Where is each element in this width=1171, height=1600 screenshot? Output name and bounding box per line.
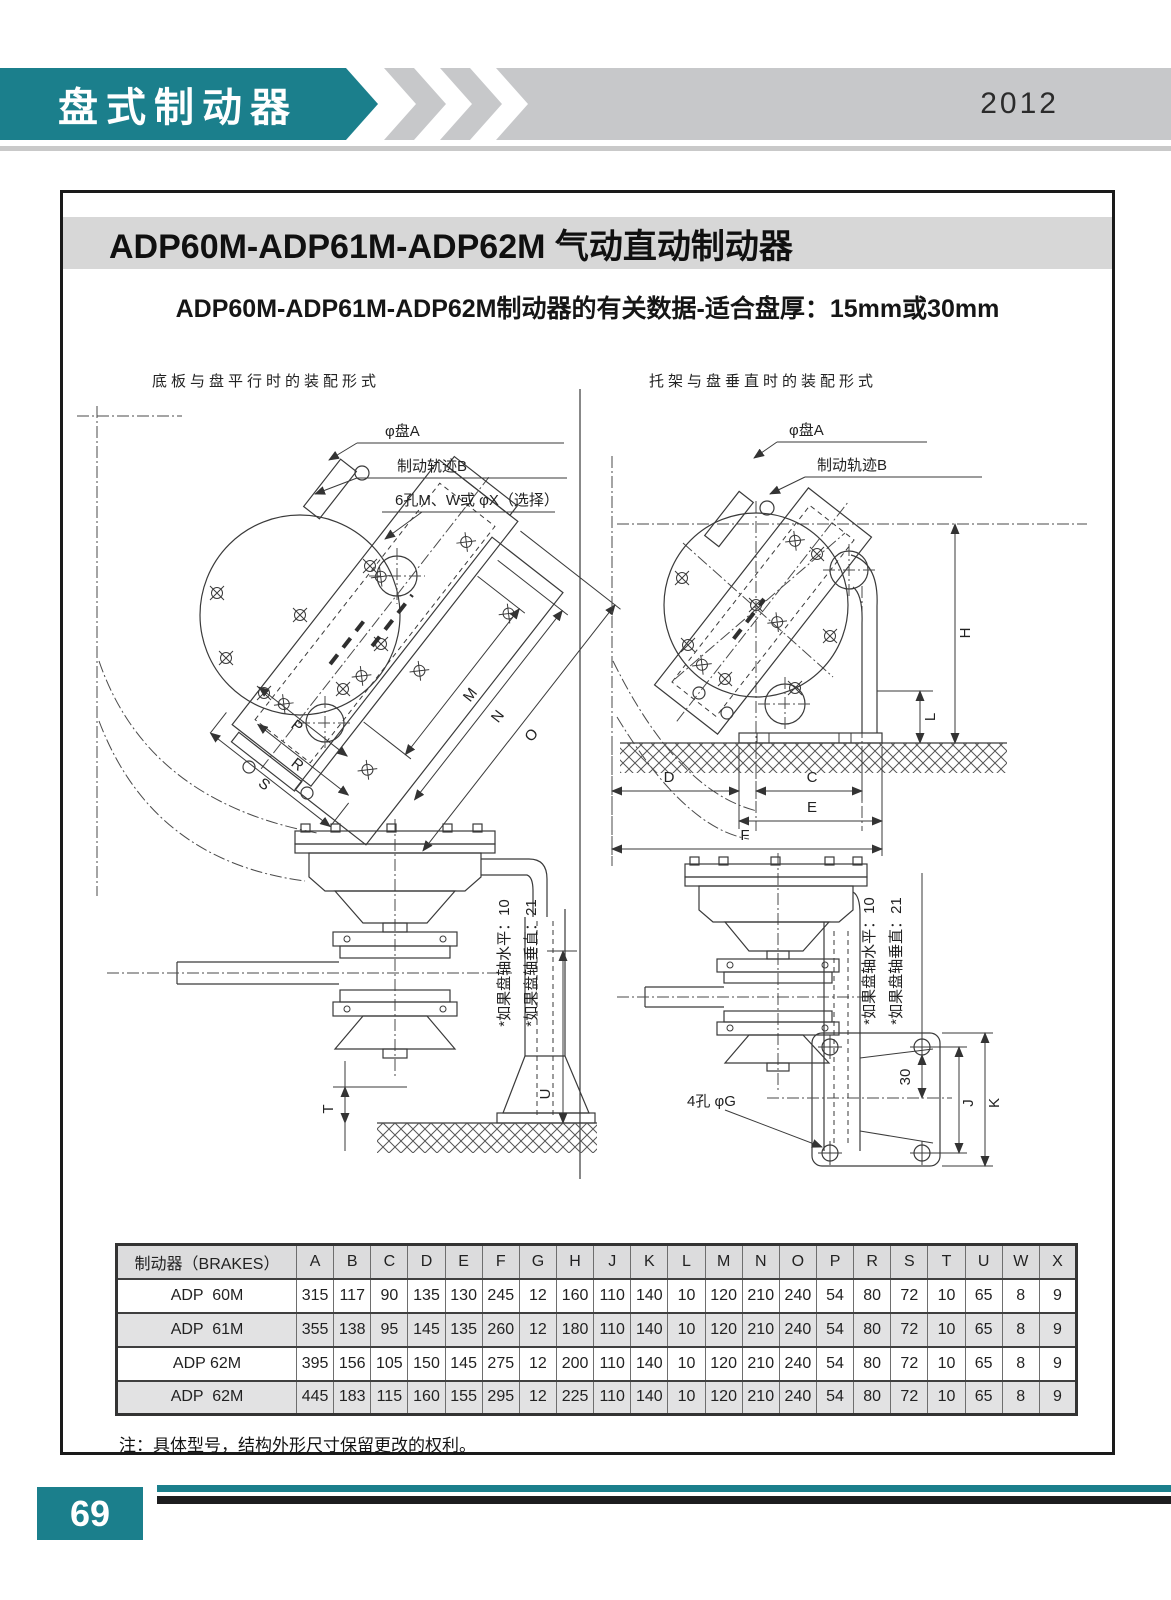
value-cell: 200 (556, 1347, 593, 1381)
value-cell: 65 (965, 1347, 1002, 1381)
dim-label-f: F (740, 827, 749, 844)
column-header: E (445, 1245, 482, 1279)
dim-label-c: C (807, 769, 818, 786)
value-cell: 8 (1002, 1347, 1039, 1381)
value-cell: 10 (928, 1313, 965, 1347)
value-cell: 9 (1039, 1279, 1076, 1313)
column-header: B (334, 1245, 371, 1279)
value-cell: 260 (482, 1313, 519, 1347)
dim-label-j: J (960, 1099, 977, 1107)
value-cell: 10 (928, 1381, 965, 1415)
value-cell: 110 (594, 1347, 631, 1381)
dim-label-s: S (255, 775, 273, 795)
column-header: G (519, 1245, 556, 1279)
value-cell: 210 (742, 1279, 779, 1313)
column-header: A (297, 1245, 334, 1279)
value-cell: 9 (1039, 1381, 1076, 1415)
value-cell: 10 (668, 1381, 705, 1415)
dim-label-e: E (807, 799, 817, 816)
value-cell: 54 (816, 1313, 853, 1347)
footer-black-bar (157, 1496, 1171, 1504)
value-cell: 80 (854, 1347, 891, 1381)
title-band: ADP60M-ADP61M-ADP62M 气动直动制动器 (63, 217, 1112, 269)
value-cell: 54 (816, 1279, 853, 1313)
column-header: N (742, 1245, 779, 1279)
value-cell: 120 (705, 1313, 742, 1347)
value-cell: 240 (779, 1381, 816, 1415)
right-assembly-diagram: H L D C E F φ盘A 制动轨迹B (612, 421, 1087, 866)
right-side-view: 4孔 φG 30 J K *如果盘轴水平：10 *如果盘轴垂直：21 (617, 853, 1003, 1166)
value-cell: 105 (371, 1347, 408, 1381)
value-cell: 120 (705, 1279, 742, 1313)
value-cell: 65 (965, 1381, 1002, 1415)
column-header: P (816, 1245, 853, 1279)
dim-label-30: 30 (897, 1069, 914, 1086)
value-cell: 8 (1002, 1313, 1039, 1347)
dim-label-n: N (488, 707, 508, 726)
value-cell: 145 (445, 1347, 482, 1381)
annotation-vertical-right: *如果盘轴垂直：21 (887, 897, 905, 1025)
label-holes-left: 6孔M、W或 φX（选择） (395, 492, 559, 509)
value-cell: 160 (556, 1279, 593, 1313)
dim-label-p: P (288, 716, 306, 736)
value-cell: 245 (482, 1279, 519, 1313)
value-cell: 10 (928, 1279, 965, 1313)
value-cell: 117 (334, 1279, 371, 1313)
column-header: J (594, 1245, 631, 1279)
dimensions-table: 制动器（BRAKES） ABCDEFGHJKLMNOPRSTUWX ADP 60… (115, 1243, 1078, 1416)
subtitle: ADP60M-ADP61M-ADP62M制动器的有关数据-适合盘厚：15mm或3… (63, 289, 1112, 325)
column-header: X (1039, 1245, 1076, 1279)
column-header: R (854, 1245, 891, 1279)
column-header: O (779, 1245, 816, 1279)
value-cell: 72 (891, 1347, 928, 1381)
page-number: 69 (70, 1493, 110, 1535)
caption-left: 底板与盘平行时的装配形式 (152, 372, 380, 390)
value-cell: 156 (334, 1347, 371, 1381)
value-cell: 80 (854, 1279, 891, 1313)
value-cell: 140 (631, 1279, 668, 1313)
column-header: C (371, 1245, 408, 1279)
value-cell: 210 (742, 1381, 779, 1415)
value-cell: 12 (519, 1313, 556, 1347)
value-cell: 140 (631, 1313, 668, 1347)
table-row: ADP 62M445183115160155295122251101401012… (117, 1381, 1077, 1415)
model-cell: ADP 60M (117, 1279, 297, 1313)
value-cell: 160 (408, 1381, 445, 1415)
column-header: T (928, 1245, 965, 1279)
page-title: ADP60M-ADP61M-ADP62M 气动直动制动器 (109, 219, 793, 268)
table-header-label: 制动器（BRAKES） (117, 1245, 297, 1279)
model-cell: ADP 62M (117, 1347, 297, 1381)
label-brake-track-left: 制动轨迹B (397, 458, 467, 475)
value-cell: 315 (297, 1279, 334, 1313)
value-cell: 8 (1002, 1279, 1039, 1313)
value-cell: 240 (779, 1279, 816, 1313)
value-cell: 210 (742, 1313, 779, 1347)
annotation-horizontal-right: *如果盘轴水平：10 (860, 897, 878, 1025)
dim-label-o: O (521, 725, 542, 745)
value-cell: 395 (297, 1347, 334, 1381)
value-cell: 183 (334, 1381, 371, 1415)
left-side-view: T U *如果盘轴水平：10 *如果盘轴垂直：21 (107, 819, 597, 1153)
column-header: F (482, 1245, 519, 1279)
value-cell: 110 (594, 1313, 631, 1347)
table-row: ADP 61M355138951451352601218011014010120… (117, 1313, 1077, 1347)
value-cell: 80 (854, 1313, 891, 1347)
column-header: U (965, 1245, 1002, 1279)
label-holes-right: 4孔 φG (687, 1093, 736, 1110)
header-gray-band: 2012 (496, 68, 1171, 140)
dim-label-d: D (664, 769, 675, 786)
value-cell: 145 (408, 1313, 445, 1347)
value-cell: 9 (1039, 1313, 1076, 1347)
annotation-vertical-left: *如果盘轴垂直：21 (522, 899, 540, 1027)
value-cell: 110 (594, 1381, 631, 1415)
value-cell: 135 (408, 1279, 445, 1313)
value-cell: 8 (1002, 1381, 1039, 1415)
value-cell: 12 (519, 1279, 556, 1313)
model-cell: ADP 62M (117, 1381, 297, 1415)
value-cell: 10 (668, 1347, 705, 1381)
value-cell: 12 (519, 1381, 556, 1415)
value-cell: 115 (371, 1381, 408, 1415)
header-underline (0, 146, 1171, 151)
value-cell: 140 (631, 1347, 668, 1381)
column-header: W (1002, 1245, 1039, 1279)
label-disc-a-left: φ盘A (385, 422, 420, 440)
footer-teal-bar (157, 1485, 1171, 1492)
ground-hatch (377, 1123, 597, 1153)
chevron-icon (440, 68, 502, 140)
value-cell: 225 (556, 1381, 593, 1415)
column-header: S (891, 1245, 928, 1279)
value-cell: 210 (742, 1347, 779, 1381)
value-cell: 10 (928, 1347, 965, 1381)
dim-label-h: H (957, 628, 974, 639)
content-box: ADP60M-ADP61M-ADP62M 气动直动制动器 ADP60M-ADP6… (60, 190, 1115, 1455)
column-header: D (408, 1245, 445, 1279)
left-assembly-diagram: M N O P R S φ盘A 制动轨迹B 6孔M、W或 φX（选择） (77, 406, 633, 908)
value-cell: 240 (779, 1347, 816, 1381)
value-cell: 445 (297, 1381, 334, 1415)
label-disc-a-right: φ盘A (789, 421, 824, 439)
table-header-row-el: 制动器（BRAKES） ABCDEFGHJKLMNOPRSTUWX (117, 1245, 1077, 1279)
table-row: ADP 60M315117901351302451216011014010120… (117, 1279, 1077, 1313)
value-cell: 54 (816, 1381, 853, 1415)
value-cell: 155 (445, 1381, 482, 1415)
value-cell: 72 (891, 1381, 928, 1415)
column-header: M (705, 1245, 742, 1279)
year-label: 2012 (980, 87, 1059, 121)
column-header: L (668, 1245, 705, 1279)
chevron-icon (384, 68, 446, 140)
value-cell: 72 (891, 1279, 928, 1313)
value-cell: 54 (816, 1347, 853, 1381)
value-cell: 9 (1039, 1347, 1076, 1381)
caption-right: 托架与盘垂直时的装配形式 (649, 372, 877, 390)
value-cell: 95 (371, 1313, 408, 1347)
value-cell: 135 (445, 1313, 482, 1347)
column-header: H (556, 1245, 593, 1279)
table-note: 注：具体型号，结构外形尺寸保留更改的权利。 (119, 1431, 476, 1456)
value-cell: 275 (482, 1347, 519, 1381)
value-cell: 10 (668, 1279, 705, 1313)
value-cell: 150 (408, 1347, 445, 1381)
header-title: 盘式制动器 (58, 75, 298, 133)
model-cell: ADP 61M (117, 1313, 297, 1347)
value-cell: 10 (668, 1313, 705, 1347)
dim-label-u: U (537, 1089, 554, 1100)
value-cell: 65 (965, 1279, 1002, 1313)
dim-label-t: T (320, 1104, 337, 1113)
value-cell: 138 (334, 1313, 371, 1347)
value-cell: 65 (965, 1313, 1002, 1347)
column-header: K (631, 1245, 668, 1279)
dim-label-k: K (986, 1098, 1003, 1108)
value-cell: 180 (556, 1313, 593, 1347)
header-banner: 盘式制动器 (0, 68, 378, 140)
dim-label-l: L (922, 713, 939, 721)
table-body: ADP 60M315117901351302451216011014010120… (117, 1279, 1077, 1415)
value-cell: 130 (445, 1279, 482, 1313)
value-cell: 120 (705, 1381, 742, 1415)
annotation-horizontal-left: *如果盘轴水平：10 (495, 899, 513, 1027)
value-cell: 90 (371, 1279, 408, 1313)
value-cell: 12 (519, 1347, 556, 1381)
label-brake-track-right: 制动轨迹B (817, 457, 887, 474)
value-cell: 355 (297, 1313, 334, 1347)
value-cell: 240 (779, 1313, 816, 1347)
value-cell: 72 (891, 1313, 928, 1347)
value-cell: 140 (631, 1381, 668, 1415)
value-cell: 295 (482, 1381, 519, 1415)
technical-drawings: 底板与盘平行时的装配形式 托架与盘垂直时的装配形式 (77, 361, 1117, 1209)
page-number-box: 69 (37, 1487, 143, 1540)
value-cell: 110 (594, 1279, 631, 1313)
value-cell: 80 (854, 1381, 891, 1415)
value-cell: 120 (705, 1347, 742, 1381)
table-row: ADP 62M395156105150145275122001101401012… (117, 1347, 1077, 1381)
